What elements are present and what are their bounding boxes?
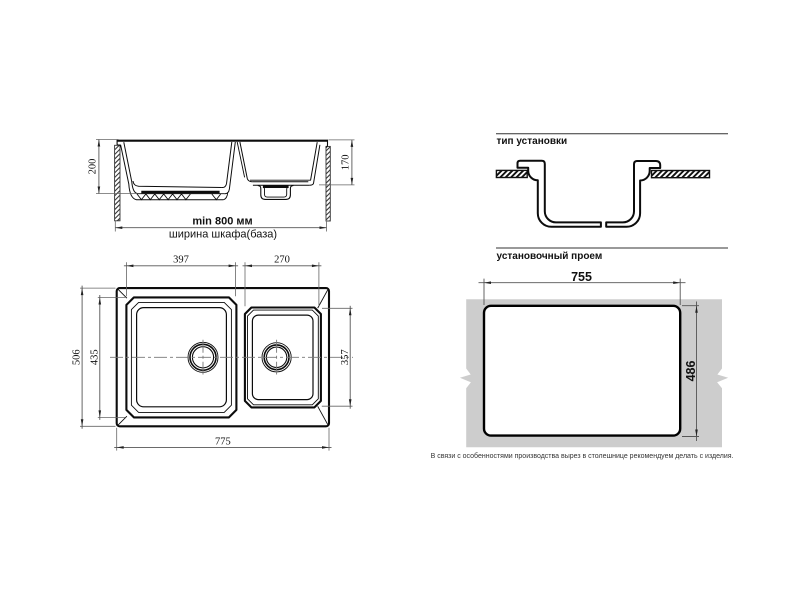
svg-text:435: 435: [89, 349, 100, 365]
svg-text:755: 755: [571, 270, 592, 284]
svg-text:486: 486: [684, 361, 698, 382]
svg-text:200: 200: [88, 159, 99, 175]
svg-text:397: 397: [173, 254, 189, 265]
svg-text:тип установки: тип установки: [497, 136, 568, 147]
svg-text:В связи с особенностями произв: В связи с особенностями производства выр…: [431, 452, 734, 460]
svg-text:775: 775: [215, 436, 231, 447]
svg-text:270: 270: [274, 254, 290, 265]
svg-text:min 800 мм: min 800 мм: [192, 216, 252, 228]
svg-text:170: 170: [340, 155, 351, 171]
svg-text:357: 357: [340, 349, 351, 365]
svg-text:ширина шкафа(база): ширина шкафа(база): [169, 229, 277, 241]
svg-text:установочный проем: установочный проем: [497, 251, 603, 262]
svg-text:506: 506: [71, 349, 82, 365]
